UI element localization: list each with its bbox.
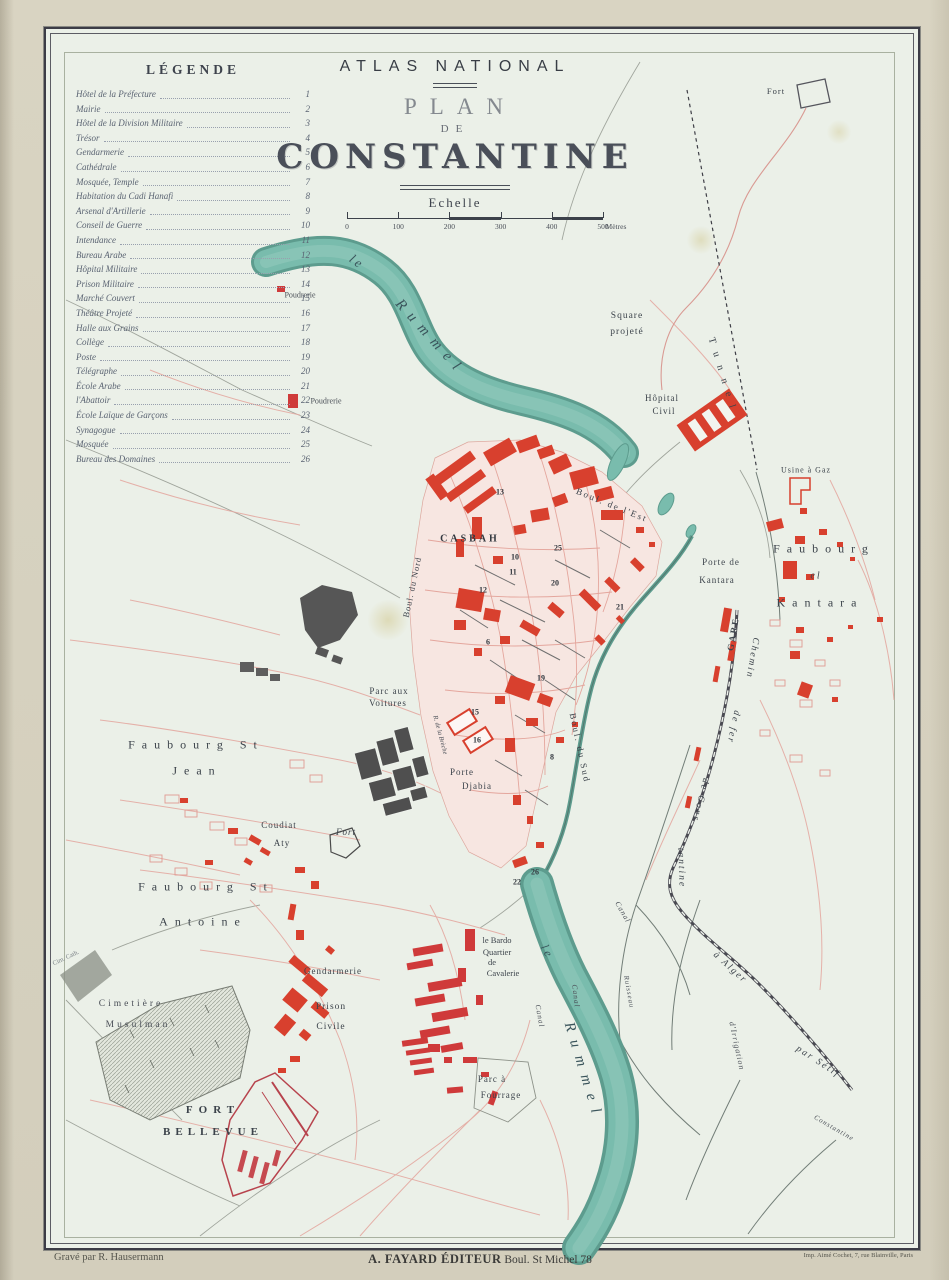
legend-item-label: Poste	[76, 350, 96, 365]
photographed-map-page: { "colors": { "paper_margin": "#d8d3c1",…	[0, 0, 949, 1280]
legend-leader-dots	[130, 258, 290, 259]
legend-item: Marché Couvert15	[76, 291, 310, 306]
fourrage-building	[488, 1090, 498, 1105]
map-title-plan: PLAN	[265, 94, 655, 120]
legend-item: Intendance11	[76, 233, 310, 248]
legend-item-label: Gendarmerie	[76, 145, 124, 160]
title-block: ATLAS NATIONAL PLAN DE CONSTANTINE Echel…	[255, 58, 655, 211]
legend-item-label: Hôtel de la Préfecture	[76, 87, 156, 102]
stream-line	[661, 108, 806, 390]
old-town-area	[409, 440, 662, 868]
publisher-name: A. FAYARD ÉDITEUR	[368, 1252, 501, 1266]
engraver-credit: Gravé par R. Hausermann	[54, 1252, 164, 1263]
river-upper	[266, 251, 624, 453]
legend-item-number: 22	[294, 393, 310, 408]
legend-item-label: Bureau Arabe	[76, 248, 126, 263]
legend-item: Théâtre Projeté16	[76, 306, 310, 321]
scale-tick-mark	[501, 212, 502, 218]
printer-credit: Imp. Aimé Cochet, 7, rue Blainville, Par…	[804, 1252, 913, 1259]
buildings-prison	[274, 945, 335, 1073]
scale-bar-segment	[449, 217, 500, 220]
fort-coudiat-outline	[330, 828, 360, 858]
legend-item: École Arabe21	[76, 379, 310, 394]
legend-item: Mosquée25	[76, 437, 310, 452]
legend-item: Bureau des Domaines26	[76, 452, 310, 467]
legend-item: l'Abattoir22	[76, 393, 310, 408]
legend-item-label: l'Abattoir	[76, 393, 110, 408]
legend-item-label: Prison Militaire	[76, 277, 134, 292]
legend-item-label: Habitation du Cadi Hanafi	[76, 189, 173, 204]
legend-item-label: Télégraphe	[76, 364, 117, 379]
legend-item-number: 10	[294, 218, 310, 233]
scale-tick-mark	[347, 212, 348, 218]
legend-item-number: 13	[294, 262, 310, 277]
legend-item-number: 23	[294, 408, 310, 423]
legend-leader-dots	[113, 448, 291, 449]
parc-aux-voitures-blocks	[351, 724, 437, 820]
legend-leader-dots	[159, 462, 290, 463]
legend-leader-dots	[121, 375, 290, 376]
buildings-faubourg	[180, 798, 319, 940]
legend-item-label: École Laïque de Garçons	[76, 408, 168, 423]
station-buildings	[685, 607, 737, 808]
legend-item-number: 18	[294, 335, 310, 350]
atlas-series-title: ATLAS NATIONAL	[255, 58, 655, 76]
publisher-address: Boul. St Michel 78	[502, 1254, 592, 1266]
legend-item-label: Mairie	[76, 102, 101, 117]
title-rule-2	[400, 185, 510, 190]
coudiat-dark-blocks	[240, 585, 358, 681]
title-rule	[433, 83, 477, 88]
legend-item-label: Hôtel de la Division Militaire	[76, 116, 183, 131]
legend-leader-dots	[150, 214, 290, 215]
legend-item-label: École Arabe	[76, 379, 121, 394]
legend-item: Bureau Arabe12	[76, 248, 310, 263]
scale-tick-label: 400	[546, 222, 557, 231]
legend-item-label: Théâtre Projeté	[76, 306, 132, 321]
river-lower	[537, 884, 622, 1248]
buildings-bardo	[407, 929, 489, 1094]
scale-tick-label: 300	[495, 222, 506, 231]
map-title-city: CONSTANTINE	[255, 137, 655, 177]
legend-leader-dots	[108, 346, 290, 347]
legend-item: Conseil de Guerre10	[76, 218, 310, 233]
legend-leader-dots	[120, 433, 291, 434]
hopital-civil-building	[677, 389, 748, 452]
legend-item-label: Arsenal d'Artillerie	[76, 204, 146, 219]
legend-item-label: Bureau des Domaines	[76, 452, 155, 467]
legend-leader-dots	[146, 229, 290, 230]
legend-item-number: 14	[294, 277, 310, 292]
legend-item: Halle aux Grains17	[76, 321, 310, 336]
legend-item-number: 12	[294, 248, 310, 263]
scale-unit: Mètres	[606, 222, 627, 231]
legend-item: École Laïque de Garçons23	[76, 408, 310, 423]
scale-tick-mark	[552, 212, 553, 218]
legend-leader-dots	[125, 389, 290, 390]
legend-leader-dots	[114, 404, 290, 405]
buildings-kantara	[766, 518, 883, 702]
usine-small-building	[800, 508, 807, 514]
legend-item-label: Synagogue	[76, 423, 116, 438]
legend-item-label: Hôpital Militaire	[76, 262, 137, 277]
legend-item: Collège18	[76, 335, 310, 350]
legend-item-number: 25	[294, 437, 310, 452]
legend-item-label: Conseil de Guerre	[76, 218, 142, 233]
legend-item-label: Marché Couvert	[76, 291, 135, 306]
legend-item-number: 15	[294, 291, 310, 306]
legend-item-number: 24	[294, 423, 310, 438]
buildings-abattoir	[402, 1037, 452, 1075]
legend-leader-dots	[120, 244, 290, 245]
legend-leader-dots	[172, 419, 290, 420]
legend-item: Télégraphe20	[76, 364, 310, 379]
legend-item-number: 20	[294, 364, 310, 379]
scale-bar-segment	[552, 217, 603, 220]
scale-bar: 0100200300400500 Mètres	[347, 212, 603, 219]
map-title-de: DE	[255, 123, 655, 135]
legend-item-label: Halle aux Grains	[76, 321, 139, 336]
legend-leader-dots	[139, 302, 290, 303]
legend-item-number: 26	[294, 452, 310, 467]
legend-item-label: Mosquée, Temple	[76, 175, 139, 190]
scale-tick-mark	[449, 212, 450, 218]
legend-leader-dots	[100, 360, 290, 361]
publisher-credit: A. FAYARD ÉDITEUR Boul. St Michel 78	[300, 1250, 660, 1268]
legend-item-number: 21	[294, 379, 310, 394]
railway-line	[670, 610, 852, 1090]
usine-a-gaz-building	[790, 478, 810, 504]
fourrage-enclosure	[474, 1058, 536, 1122]
legend-item-number: 19	[294, 350, 310, 365]
legend-leader-dots	[143, 331, 291, 332]
scale-tick-label: 100	[393, 222, 404, 231]
legend-item: Hôpital Militaire13	[76, 262, 310, 277]
legend-item: Prison Militaire14	[76, 277, 310, 292]
legend-item: Poste19	[76, 350, 310, 365]
legend-item-label: Trésor	[76, 131, 100, 146]
scale-label: Echelle	[255, 195, 655, 211]
scale-tick-label: 0	[345, 222, 349, 231]
legend-item-number: 16	[294, 306, 310, 321]
legend-item-label: Collège	[76, 335, 104, 350]
legend-leader-dots	[136, 317, 290, 318]
fort-top-outline	[797, 79, 830, 108]
scale-tick-label: 200	[444, 222, 455, 231]
legend-item-number: 17	[294, 321, 310, 336]
legend-leader-dots	[141, 273, 290, 274]
legend-item-number: 11	[294, 233, 310, 248]
legend-item: Synagogue24	[76, 423, 310, 438]
legend-leader-dots	[138, 287, 290, 288]
legend-item-label: Intendance	[76, 233, 116, 248]
cimetiere-musulman-area	[60, 950, 250, 1120]
legend-item-label: Mosquée	[76, 437, 109, 452]
scale-tick-mark	[398, 212, 399, 218]
scale-tick-mark	[603, 212, 604, 218]
legend-item-label: Cathédrale	[76, 160, 117, 175]
